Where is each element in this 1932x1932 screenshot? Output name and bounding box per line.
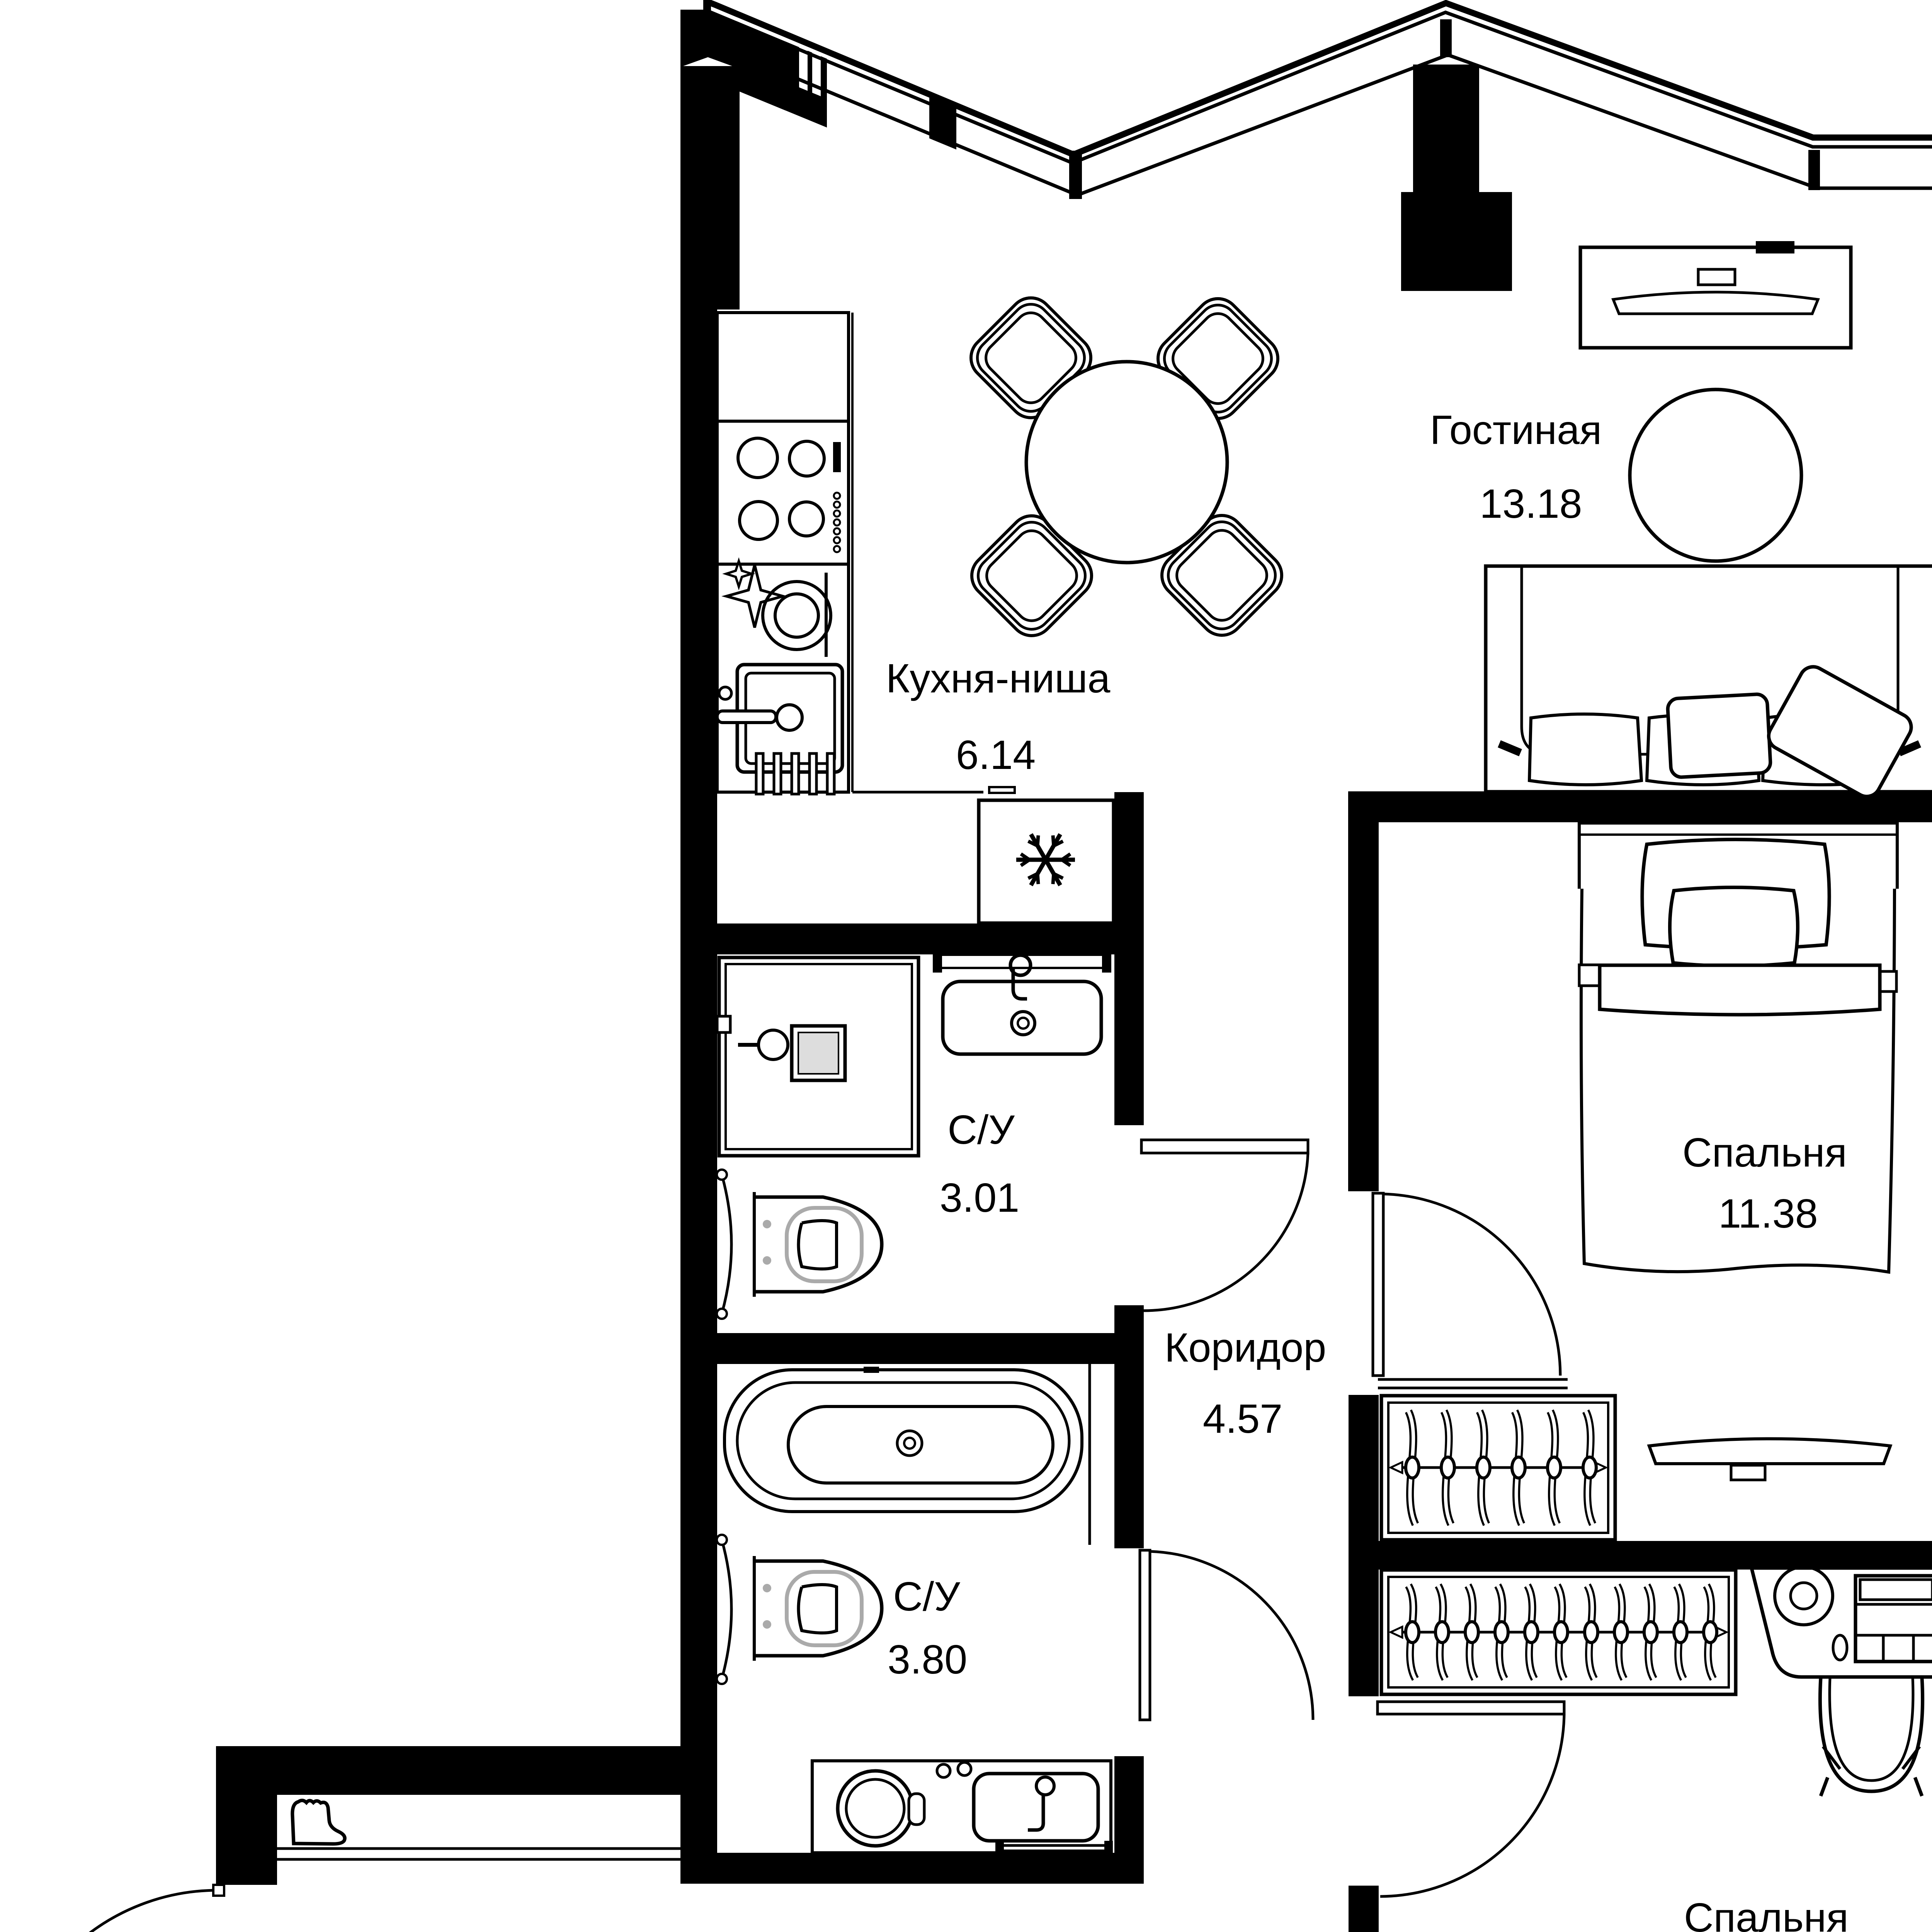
svg-text:С/У: С/У [947,1107,1015,1153]
svg-text:Гостиная: Гостиная [1430,407,1602,453]
svg-text:Коридор: Коридор [1165,1325,1327,1371]
svg-text:3.01: 3.01 [940,1175,1019,1221]
svg-text:13.18: 13.18 [1480,481,1582,527]
svg-text:6.14: 6.14 [956,732,1036,778]
svg-text:Кухня-ниша: Кухня-ниша [886,656,1111,701]
svg-text:С/У: С/У [893,1574,960,1619]
svg-text:Спальня: Спальня [1684,1895,1849,1932]
svg-text:3.80: 3.80 [888,1637,967,1682]
svg-text:4.57: 4.57 [1203,1396,1282,1442]
svg-text:11.38: 11.38 [1718,1191,1818,1236]
svg-text:Спальня: Спальня [1682,1130,1847,1175]
